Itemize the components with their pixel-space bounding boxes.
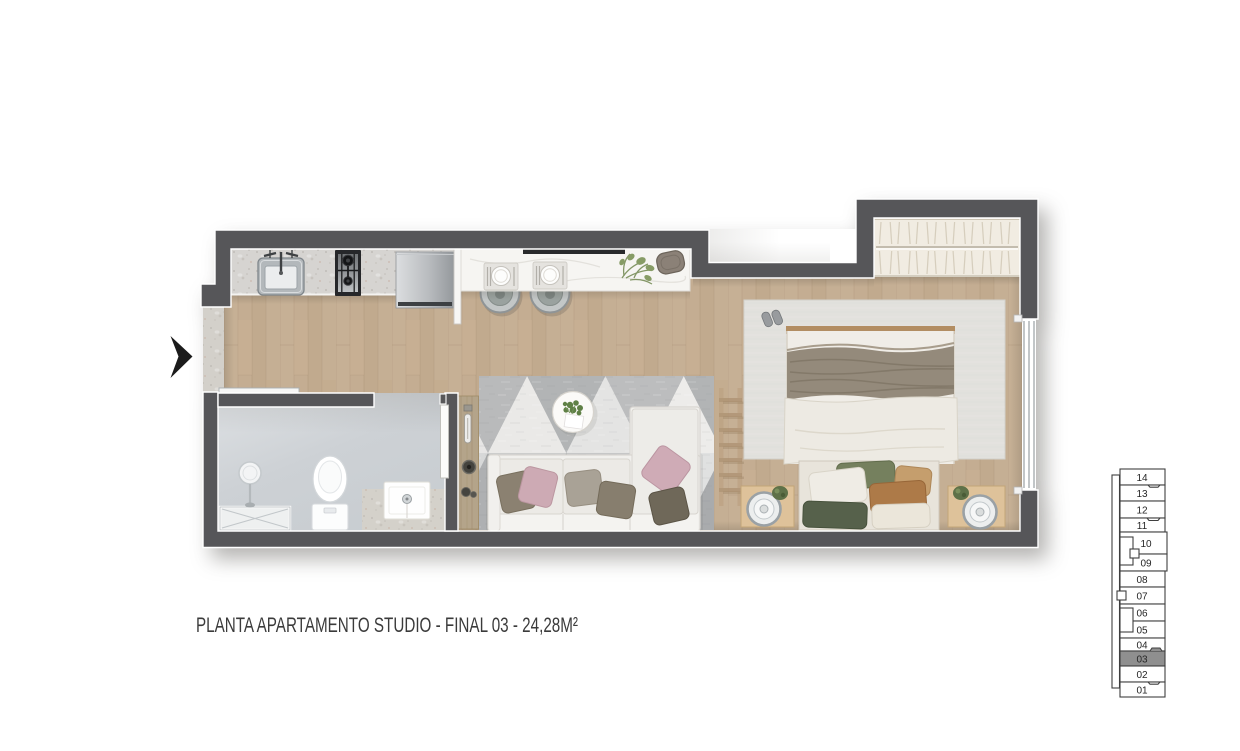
svg-text:13: 13: [1136, 489, 1148, 500]
svg-text:06: 06: [1136, 608, 1148, 619]
svg-text:03: 03: [1136, 654, 1148, 665]
svg-text:11: 11: [1137, 521, 1148, 532]
svg-text:07: 07: [1136, 591, 1148, 602]
svg-text:02: 02: [1136, 670, 1148, 681]
svg-text:05: 05: [1136, 625, 1148, 636]
svg-text:08: 08: [1136, 575, 1148, 586]
svg-text:14: 14: [1136, 473, 1148, 484]
svg-text:04: 04: [1136, 640, 1148, 651]
svg-text:09: 09: [1140, 558, 1152, 569]
svg-text:10: 10: [1140, 539, 1152, 550]
svg-text:01: 01: [1136, 685, 1148, 696]
svg-text:12: 12: [1136, 505, 1148, 516]
svg-text:PLANTA APARTAMENTO STUDIO - FI: PLANTA APARTAMENTO STUDIO - FINAL 03 - 2…: [196, 614, 578, 637]
